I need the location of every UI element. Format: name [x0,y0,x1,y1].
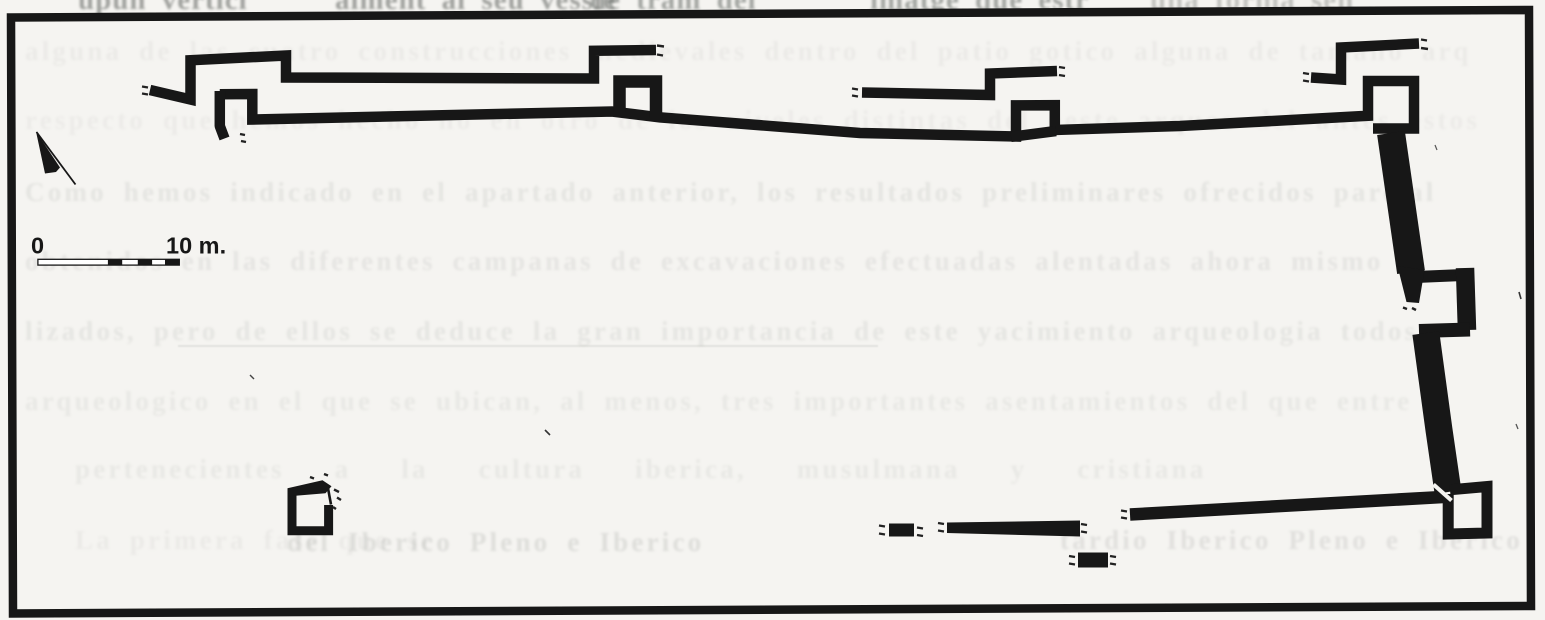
svg-text:0: 0 [31,233,44,259]
svg-text:10 m.: 10 m. [166,233,226,259]
